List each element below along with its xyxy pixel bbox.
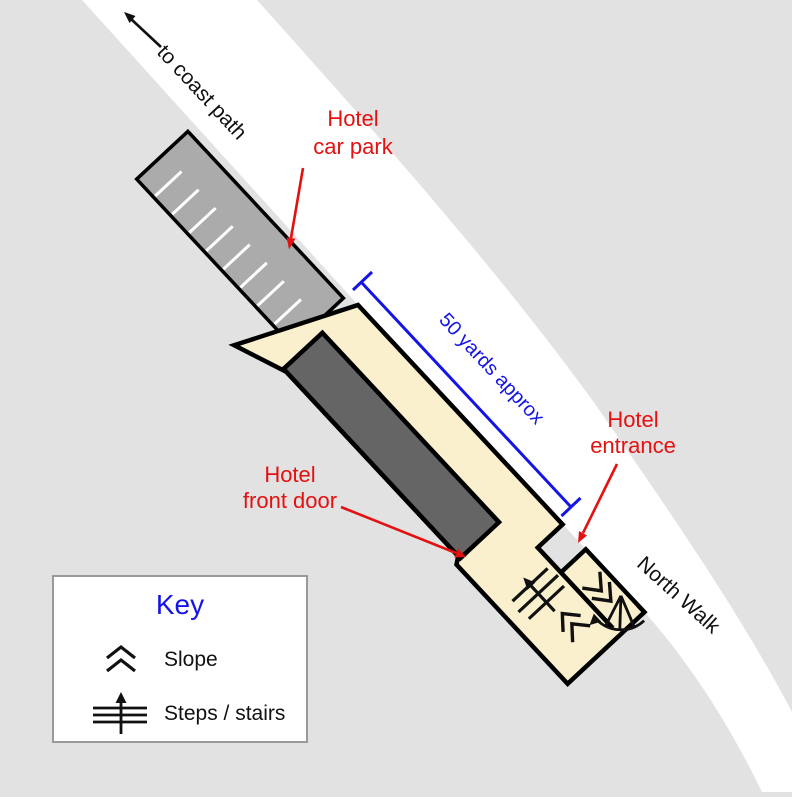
key-item-label: Steps / stairs: [164, 702, 285, 726]
slope-icon: [84, 644, 158, 676]
key-item-label: Slope: [164, 648, 218, 672]
key-item-slope: Slope: [52, 640, 308, 680]
steps-icon: [84, 690, 158, 738]
key-title: Key: [54, 589, 306, 621]
key-item-steps: Steps / stairs: [52, 690, 308, 738]
